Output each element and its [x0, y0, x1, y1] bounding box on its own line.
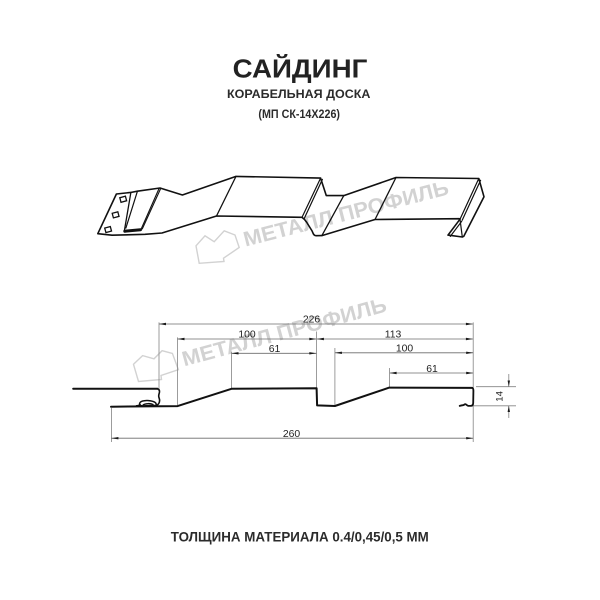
svg-text:100: 100 — [396, 343, 414, 354]
svg-text:КОРАБЕЛЬНАЯ ДОСКА: КОРАБЕЛЬНАЯ ДОСКА — [227, 87, 371, 101]
svg-text:260: 260 — [283, 429, 301, 440]
svg-text:226: 226 — [303, 315, 321, 326]
svg-text:100: 100 — [238, 330, 256, 341]
svg-text:61: 61 — [269, 344, 281, 355]
svg-text:61: 61 — [426, 364, 438, 375]
svg-text:14: 14 — [495, 391, 506, 402]
svg-text:(МП СК-14Х226): (МП СК-14Х226) — [258, 107, 340, 121]
svg-text:САЙДИНГ: САЙДИНГ — [233, 53, 368, 83]
svg-text:ТОЛЩИНА МАТЕРИАЛА 0.4/0,45/0,5: ТОЛЩИНА МАТЕРИАЛА 0.4/0,45/0,5 ММ — [171, 529, 429, 545]
svg-text:113: 113 — [385, 330, 402, 341]
